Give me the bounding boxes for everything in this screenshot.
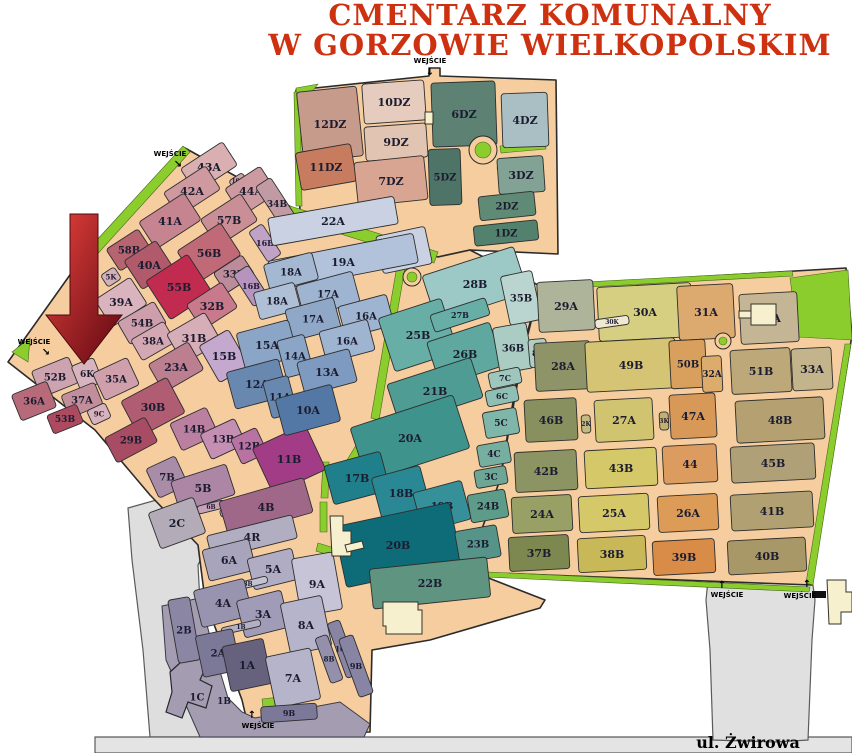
section-35A-label: 35A: [105, 375, 127, 386]
section-29B-label: 29B: [120, 436, 142, 447]
section-38A-label: 38A: [142, 337, 164, 348]
building-4: [751, 304, 776, 325]
roundabout-0-island: [475, 142, 491, 158]
section-2DZ-label: 2DZ: [496, 202, 519, 213]
building-6: [425, 112, 433, 124]
section-5C-label: 5C: [494, 419, 507, 429]
section-15A-label: 15A: [255, 339, 279, 352]
section-4DZ-label: 4DZ: [512, 114, 537, 127]
section-5A-label: 5A: [265, 563, 282, 576]
section-2K-label: 2K: [581, 421, 591, 428]
section-37B-label: 37B: [527, 547, 552, 560]
section-33A-label: 33A: [800, 363, 824, 376]
section-7DZ-label: 7DZ: [378, 175, 403, 188]
section-41B-label: 41B: [760, 505, 785, 518]
section-20A-label: 20A: [398, 432, 422, 445]
section-4B-label: 4B: [258, 501, 275, 514]
section-47A-label: 47A: [681, 410, 705, 423]
section-17B-label: 17B: [345, 472, 370, 485]
section-13A-label: 13A: [315, 366, 339, 379]
section-7C-label: 7C: [499, 373, 511, 383]
section-29A-label: 29A: [554, 300, 578, 313]
entrance-label-5: WEJŚCIE: [242, 721, 275, 730]
section-48B-label: 48B: [768, 414, 793, 427]
section-15B-label: 15B: [212, 350, 237, 363]
section-52B-label: 52B: [44, 373, 66, 384]
section-1B-label: 1B: [236, 624, 245, 631]
section-3A-label: 3A: [255, 608, 272, 621]
section-23A-label: 23A: [164, 361, 188, 374]
section-30B-label: 30B: [141, 401, 166, 414]
map-title-line1: CMENTARZ KOMUNALNY: [250, 0, 850, 30]
section-11B-label: 11B: [277, 453, 302, 466]
section-4A-label: 4A: [215, 597, 232, 610]
green-area-7: [320, 502, 327, 532]
section-1B-label: 1B: [217, 697, 231, 707]
section-2B-label: 2B: [176, 626, 191, 637]
section-28A-label: 28A: [551, 360, 575, 373]
map-title-line2: W GORZOWIE WIELKOPOLSKIM: [250, 30, 850, 60]
building-3: [827, 580, 852, 624]
section-25B-label: 25B: [406, 329, 431, 342]
entrance-arrow-icon-2: ↘: [42, 347, 50, 358]
section-9C-label: 9C: [94, 410, 105, 419]
southeast-parking: [706, 578, 815, 742]
section-53B-label: 53B: [55, 415, 76, 425]
section-24B-label: 24B: [477, 502, 499, 513]
section-9B-label: 9B: [350, 661, 363, 671]
section-43B-label: 43B: [609, 462, 634, 475]
section-19A-label: 19A: [331, 256, 355, 269]
section-26A-label: 26A: [676, 507, 700, 520]
entrance-arrow-icon-0: ↘: [174, 159, 182, 170]
section-8B-label: 8B: [324, 655, 335, 664]
entrance-arrow-icon-5: ↑: [248, 710, 256, 721]
section-16A-label: 16A: [336, 337, 358, 348]
section-10A-label: 10A: [296, 404, 320, 417]
cemetery-map-svg: 12DZ10DZ9DZ6DZ4DZ11DZ7DZ5DZ3DZ2DZ1DZ43A4…: [0, 0, 852, 753]
street-label: ul. Żwirowa: [696, 732, 800, 752]
section-6B-label: 6B: [206, 504, 215, 511]
section-3C-label: 3C: [484, 473, 497, 483]
section-16B-label: 16B: [242, 281, 260, 291]
section-32A-label: 32A: [702, 370, 723, 380]
entrance-label-4: WEJŚCIE: [784, 591, 817, 600]
section-35B-label: 35B: [510, 294, 532, 305]
entrance-label-0: WEJŚCIE: [154, 149, 187, 158]
section-39A-label: 39A: [109, 296, 133, 309]
section-41A-label: 41A: [158, 215, 182, 228]
entrance-arrow-icon-4: ↑: [803, 579, 811, 590]
section-5B-label: 5B: [195, 482, 212, 495]
entrance-arrow-icon-1: ↓: [426, 67, 434, 78]
section-34B-label: 34B: [267, 200, 288, 210]
section-28B-label: 28B: [463, 278, 488, 291]
section-42B-label: 42B: [534, 465, 559, 478]
section-24A-label: 24A: [530, 508, 554, 521]
section-1C-label: 1C: [190, 693, 205, 704]
section-55B-label: 55B: [167, 281, 192, 294]
section-17A-label: 17A: [302, 315, 324, 326]
section-6C-label: 6C: [496, 391, 508, 401]
section-40A-label: 40A: [137, 259, 161, 272]
section-40B-label: 40B: [755, 550, 780, 563]
section-11DZ-label: 11DZ: [310, 161, 343, 174]
section-51B-label: 51B: [749, 365, 774, 378]
entrance-label-2: WEJŚCIE: [18, 337, 51, 346]
section-1DZ-label: 1DZ: [495, 229, 518, 240]
cemetery-map-page: CMENTARZ KOMUNALNY W GORZOWIE WIELKOPOLS…: [0, 0, 852, 753]
section-5DZ-label: 5DZ: [434, 173, 457, 184]
section-30A-label: 30A: [633, 306, 657, 319]
section-5K-label: 5K: [106, 273, 118, 282]
section-27A-label: 27A: [612, 414, 636, 427]
section-38B-label: 38B: [600, 548, 625, 561]
section-31A-label: 31A: [694, 306, 718, 319]
section-8A-label: 8A: [298, 619, 315, 632]
entrance-label-3: WEJŚCIE: [711, 590, 744, 599]
section-12DZ-label: 12DZ: [314, 118, 347, 131]
section-7A-label: 7A: [285, 672, 302, 685]
section-9DZ-label: 9DZ: [383, 136, 408, 149]
section-6DZ-label: 6DZ: [451, 108, 476, 121]
section-1A-label: 1A: [239, 659, 256, 672]
section-39B-label: 39B: [672, 551, 697, 564]
building-2: [383, 602, 422, 634]
section-6A-label: 6A: [221, 554, 238, 567]
section-18B-label: 18B: [389, 487, 414, 500]
section-18A-label: 18A: [266, 297, 288, 308]
section-49B-label: 49B: [619, 359, 644, 372]
section-10DZ-label: 10DZ: [378, 96, 411, 109]
section-46B-label: 46B: [539, 414, 564, 427]
green-area-10: [790, 270, 852, 340]
section-44-label: 44: [682, 458, 698, 471]
section-36B-label: 36B: [502, 344, 524, 355]
section-50B-label: 50B: [677, 360, 699, 371]
section-18A-label: 18A: [280, 268, 302, 279]
section-45B-label: 45B: [761, 457, 786, 470]
section-54B-label: 54B: [131, 319, 153, 330]
entrance-arrow-icon-3: ↑: [718, 580, 726, 591]
section-56B-label: 56B: [197, 247, 222, 260]
section-32B-label: 32B: [200, 300, 225, 313]
roundabout-2-island: [719, 337, 727, 345]
section-20B-label: 20B: [386, 539, 411, 552]
section-9B-label: 9B: [283, 708, 296, 718]
section-36A-label: 36A: [23, 397, 45, 408]
building-5: [739, 311, 751, 318]
roundabout-1-island: [407, 272, 417, 282]
section-23B-label: 23B: [467, 540, 489, 551]
section-2C-label: 2C: [169, 517, 186, 530]
section-27B-label: 27B: [451, 310, 469, 320]
map-title: CMENTARZ KOMUNALNY W GORZOWIE WIELKOPOLS…: [250, 0, 850, 60]
section-25A-label: 25A: [602, 507, 626, 520]
section-3DZ-label: 3DZ: [508, 169, 533, 182]
section-9A-label: 9A: [309, 578, 326, 591]
section-22A-label: 22A: [321, 215, 345, 228]
section-30K-label: 30K: [605, 319, 619, 326]
section-4C-label: 4C: [487, 450, 500, 460]
section-22B-label: 22B: [418, 577, 443, 590]
section-21B-label: 21B: [423, 385, 448, 398]
section-3K-label: 3K: [659, 418, 669, 425]
